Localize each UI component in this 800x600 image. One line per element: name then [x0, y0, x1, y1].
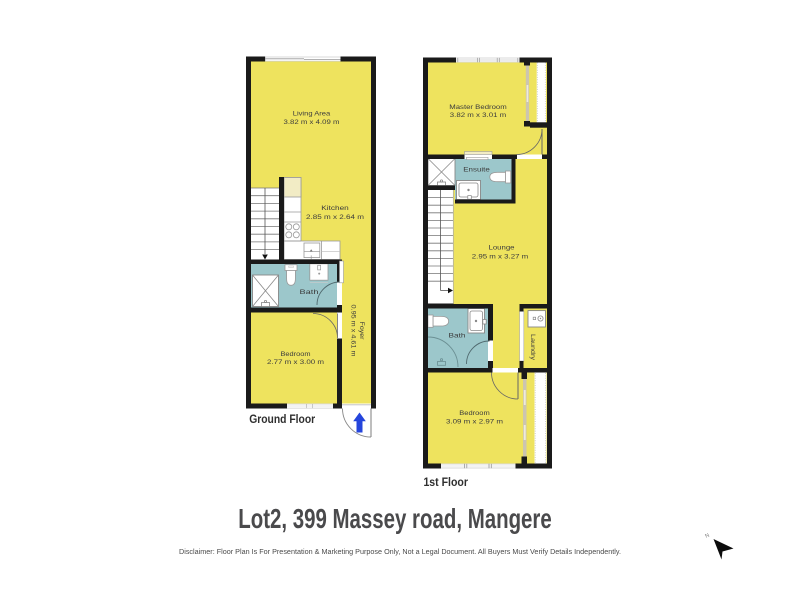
svg-text:2.95 m x 3.27 m: 2.95 m x 3.27 m: [472, 254, 529, 261]
svg-text:2.77 m x 3.00 m: 2.77 m x 3.00 m: [267, 359, 324, 366]
svg-text:1st Floor: 1st Floor: [423, 477, 468, 489]
svg-text:Bath: Bath: [449, 332, 466, 339]
svg-text:Foyer: Foyer: [358, 322, 365, 341]
svg-text:Ground Floor: Ground Floor: [249, 414, 315, 426]
svg-text:Lot2, 399 Massey road, Mangere: Lot2, 399 Massey road, Mangere: [238, 503, 552, 534]
svg-text:Ensuite: Ensuite: [463, 166, 490, 173]
svg-text:Kitchen: Kitchen: [321, 205, 349, 212]
svg-text:3.82 m x 4.09 m: 3.82 m x 4.09 m: [284, 119, 340, 126]
svg-text:Lounge: Lounge: [489, 244, 515, 251]
svg-text:Bedroom: Bedroom: [459, 410, 490, 417]
svg-text:Laundry: Laundry: [529, 334, 536, 361]
svg-text:Living Area: Living Area: [293, 110, 331, 117]
svg-text:3.82 m x 3.01 m: 3.82 m x 3.01 m: [450, 112, 507, 119]
svg-text:2.85 m x 2.64 m: 2.85 m x 2.64 m: [306, 214, 364, 221]
svg-text:Bedroom: Bedroom: [281, 351, 311, 358]
svg-text:Disclaimer: Floor Plan Is For: Disclaimer: Floor Plan Is For Presentati…: [179, 549, 621, 556]
svg-text:Bath: Bath: [300, 289, 319, 296]
svg-text:3.09 m x 2.97 m: 3.09 m x 2.97 m: [446, 418, 503, 425]
svg-text:0.95 m x 4.61 m: 0.95 m x 4.61 m: [350, 305, 357, 357]
svg-text:Master Bedroom: Master Bedroom: [449, 104, 507, 111]
